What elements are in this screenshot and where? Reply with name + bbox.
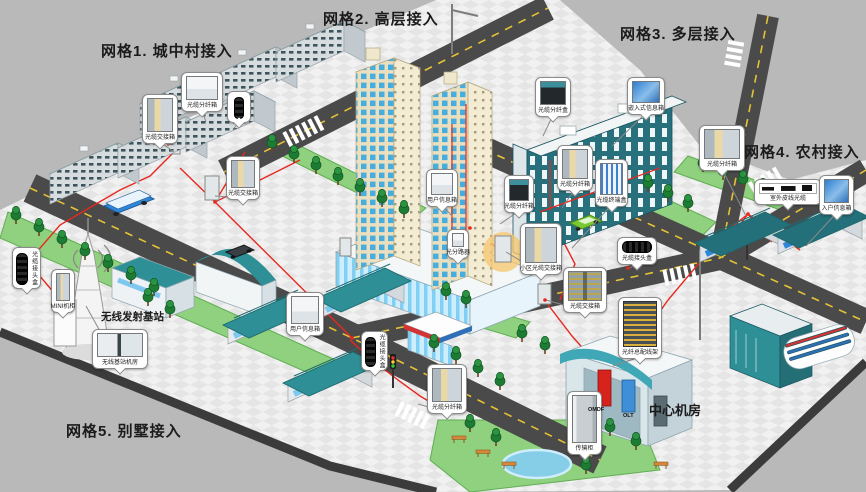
callout-label: 嵌入式信息箱 <box>628 106 664 112</box>
callout-label: 光缆分纤箱 <box>187 103 217 109</box>
callout-cabinet-open: 光缆交接箱 <box>226 156 260 200</box>
cabinet-open-icon <box>56 273 70 301</box>
cabinet-open-icon <box>432 368 462 402</box>
callout-pcb-board: 入户信息箱 <box>819 175 854 215</box>
label-grid3: 网格3. 多层接入 <box>620 27 736 42</box>
splitter-box-icon <box>509 179 529 201</box>
drop-cable-fittings-icon <box>759 183 817 194</box>
callout-cabinet-open: 光缆分纤箱 <box>699 125 745 171</box>
callout-label: 光缆接头盒 <box>622 256 652 262</box>
callout-label: 小区光缆交接箱 <box>520 266 562 272</box>
cabinet-open-icon <box>562 149 588 179</box>
pcb-board-icon <box>824 179 849 203</box>
fiber-rack-icon <box>623 301 657 347</box>
callout-label: MINI机柜 <box>51 304 76 310</box>
callout-label: 用户信息箱 <box>427 198 457 204</box>
callout-label: 光缆交接箱 <box>228 191 258 197</box>
callout-label: 光缆交接箱 <box>145 135 175 141</box>
callout-cable-closure-horizontal: 光缆接头盒 <box>617 237 657 265</box>
label-omdf: OMDF <box>588 408 604 414</box>
callout-label: 光缆交接箱 <box>570 304 600 310</box>
callout-label: 室外皮线光缆 <box>770 196 806 202</box>
callout-label: 光缆终端盒 <box>597 198 627 204</box>
network-topology-diagram: 网格1. 城中村接入 网格2. 高层接入 网格3. 多层接入 网格4. 农村接入… <box>0 0 866 492</box>
callout-label: 无线基站机房 <box>102 360 138 366</box>
cabinet-open-icon <box>231 160 255 188</box>
callout-wall-box: 用户信息箱 <box>286 292 324 336</box>
olt-cabinet <box>622 380 635 412</box>
callout-label: 光缆分纤箱 <box>560 182 590 188</box>
callout-label: 光缆接头盒 <box>378 334 384 369</box>
cabinet-open-double-icon <box>568 271 602 301</box>
callout-cable-closure-vertical: 光缆接头盒 <box>361 331 388 371</box>
wall-box-icon <box>452 233 464 247</box>
label-grid1: 网格1. 城中村接入 <box>101 44 233 59</box>
callout-label: 用户信息箱 <box>290 327 320 333</box>
callout-fiber-rack: 光纤总配线架 <box>618 297 662 359</box>
callout-odf-strips: 光缆终端盒 <box>595 159 628 207</box>
cable-closure-horizontal-icon <box>622 241 652 253</box>
callout-splitter-box: 光缆分纤盒 <box>535 77 571 117</box>
callout-pcb-board: 嵌入式信息箱 <box>627 77 665 115</box>
wall-box-icon <box>186 76 218 100</box>
label-olt: OLT <box>623 414 634 420</box>
wall-box-icon <box>291 296 319 324</box>
callout-label: 光缆分纤箱 <box>707 162 737 168</box>
equipment-room-icon <box>97 333 143 357</box>
callout-cable-closure-vertical <box>227 91 251 123</box>
label-grid5: 网格5. 别墅接入 <box>66 424 182 439</box>
label-wireless-station: 无线发射基站 <box>101 312 164 323</box>
callout-label: 光缆接头盒 <box>30 251 36 286</box>
pcb-board-icon <box>632 81 660 103</box>
wall-box-icon <box>431 173 453 195</box>
gray-rack-icon <box>572 395 597 443</box>
callout-label: 入户信息箱 <box>822 206 852 212</box>
callout-wall-box: 光分路器 <box>447 229 469 259</box>
label-grid2: 网格2. 高层接入 <box>323 12 439 27</box>
cabinet-open-icon <box>147 98 173 132</box>
cable-closure-vertical-icon <box>234 97 244 119</box>
callout-label: 光纤总配线架 <box>622 350 658 356</box>
callout-label: 光缆分纤箱 <box>432 405 462 411</box>
callout-wall-box: 用户信息箱 <box>426 169 458 207</box>
cable-closure-vertical-icon <box>365 337 376 367</box>
label-grid4: 网格4. 农村接入 <box>744 145 860 160</box>
callout-label: 光缆分纤箱 <box>504 204 534 210</box>
callout-drop-cable-fittings: 室外皮线光缆 <box>754 179 822 205</box>
callout-splitter-box: 光缆分纤箱 <box>504 175 534 213</box>
splitter-box-icon <box>540 81 566 105</box>
callout-wall-box: 光缆分纤箱 <box>181 72 223 112</box>
cable-closure-vertical-icon <box>16 253 28 285</box>
callout-cabinet-open: 光缆分纤箱 <box>427 364 467 414</box>
callout-cabinet-open: MINI机柜 <box>51 269 75 313</box>
callout-cabinet-open-double: 光缆交接箱 <box>563 267 607 313</box>
callout-cabinet-open: 光缆分纤箱 <box>557 145 593 191</box>
callout-equipment-room: 无线基站机房 <box>92 329 148 369</box>
callout-gray-rack: 传输柜 <box>567 391 602 455</box>
callout-label: 光分路器 <box>446 250 470 256</box>
label-central-office: 中心机房 <box>649 404 701 417</box>
cabinet-open-icon <box>704 129 740 159</box>
callout-cable-closure-vertical: 光缆接头盒 <box>12 247 41 289</box>
callout-cabinet-open: 光缆交接箱 <box>142 94 178 144</box>
callout-label: 传输柜 <box>575 446 593 452</box>
odf-strips-icon <box>600 163 623 195</box>
cabinet-open-icon <box>525 227 557 263</box>
callout-label: 光缆分纤盒 <box>538 108 568 114</box>
city-scene <box>0 0 866 492</box>
callout-cabinet-open: 小区光缆交接箱 <box>520 223 562 275</box>
